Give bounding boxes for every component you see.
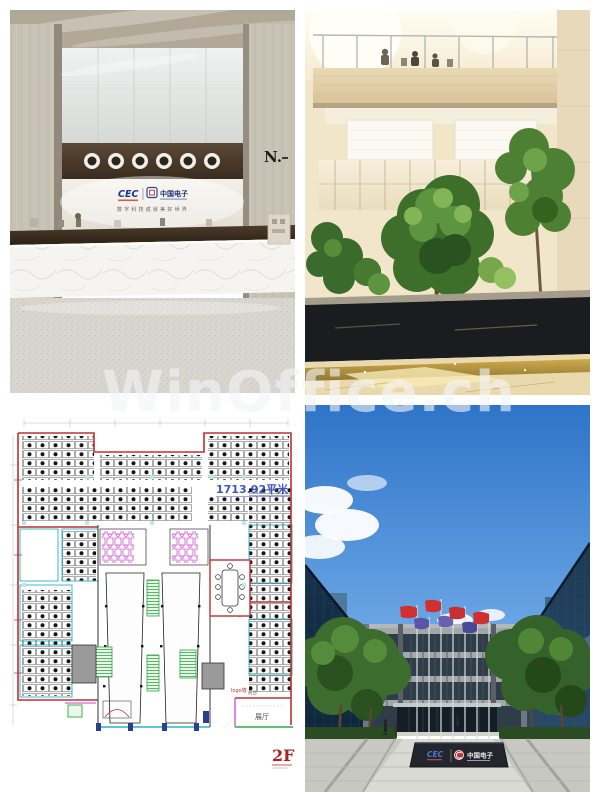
partner-logo-text: 中国电子	[160, 189, 188, 198]
lobby-photo: CEC 中国电子 数字科技成就美好世界 N.	[10, 10, 295, 393]
reception-desk	[10, 225, 295, 298]
cec-logo-subbar	[118, 200, 138, 202]
lobby-emblem-band	[62, 143, 243, 179]
lobby-floor	[10, 298, 295, 393]
conference-room	[210, 560, 250, 616]
lobby-glass-wall	[60, 48, 243, 143]
photo-collage-page: CEC 中国电子 数字科技成就美好世界 N.	[0, 0, 600, 800]
exhibition-label: 展厅	[255, 713, 269, 721]
building-photo-art: CEC 中国电子	[305, 405, 590, 792]
logo-wall-label: logo墙	[231, 687, 247, 694]
partner-logo-subbar	[160, 199, 187, 200]
floor-plan-art: 展厅 logo墙 前台 1713.92平米 2F	[10, 405, 295, 790]
sign-cec-text: CEC	[427, 750, 444, 759]
building-photo: CEC 中国电子	[305, 405, 590, 792]
reception-label: 前台	[248, 689, 257, 696]
atrium-photo-art	[305, 10, 590, 395]
sign-partner-text: 中国电子	[467, 751, 494, 760]
entrance-sign: CEC 中国电子	[410, 743, 508, 767]
floor-plan-image: 展厅 logo墙 前台 1713.92平米 2F	[10, 405, 295, 790]
sign-logo-icon	[455, 751, 464, 760]
lobby-logo-wall: CEC 中国电子 数字科技成就美好世界	[60, 176, 244, 231]
floor-label: 2F	[272, 746, 295, 765]
sign-partner-subbar	[467, 760, 490, 761]
planter-box	[305, 290, 590, 362]
plan-area-label: 1713.92平米	[216, 482, 289, 496]
wall-letter: N.	[264, 148, 282, 166]
balcony-fascia	[313, 68, 557, 108]
cec-logo-text: CEC	[118, 189, 138, 200]
wall-control-panel	[268, 214, 290, 244]
atrium-photo	[305, 10, 590, 395]
partner-logo-icon	[147, 188, 157, 198]
sign-cec-subbar	[427, 759, 442, 760]
lobby-photo-art: CEC 中国电子 数字科技成就美好世界 N.	[10, 10, 295, 393]
lobby-tagline: 数字科技成就美好世界	[117, 206, 189, 213]
floor-label-group: 2F	[272, 746, 295, 768]
